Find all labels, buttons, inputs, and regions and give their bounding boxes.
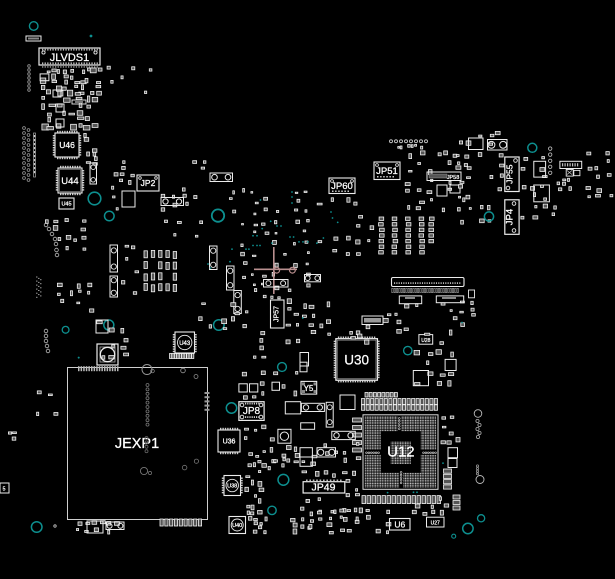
svg-text:U28: U28: [421, 338, 430, 344]
svg-text:U36: U36: [223, 439, 236, 446]
svg-text:U6: U6: [394, 519, 405, 529]
svg-text:JP4: JP4: [505, 209, 516, 225]
svg-text:JP57: JP57: [274, 306, 281, 322]
svg-text:U30: U30: [344, 352, 369, 367]
svg-text:JP8: JP8: [243, 406, 261, 417]
svg-text:5: 5: [3, 487, 6, 493]
svg-text:Y5: Y5: [304, 384, 314, 393]
svg-text:U12: U12: [387, 443, 415, 460]
svg-text:JP2: JP2: [141, 178, 156, 188]
svg-text:U40: U40: [232, 523, 242, 529]
svg-text:JEXP1: JEXP1: [115, 436, 159, 452]
svg-text:U46: U46: [59, 140, 75, 150]
svg-text:JLVDS1: JLVDS1: [50, 52, 90, 64]
svg-text:JP49: JP49: [312, 482, 336, 494]
svg-text:U45: U45: [61, 202, 71, 208]
svg-text:U38: U38: [227, 484, 237, 490]
svg-text:U44: U44: [61, 176, 78, 187]
svg-text:JP51: JP51: [376, 166, 398, 177]
svg-text:U43: U43: [179, 341, 191, 347]
svg-text:JP58: JP58: [447, 175, 460, 181]
svg-text:U27: U27: [431, 521, 440, 527]
svg-text:JP55: JP55: [505, 164, 515, 184]
